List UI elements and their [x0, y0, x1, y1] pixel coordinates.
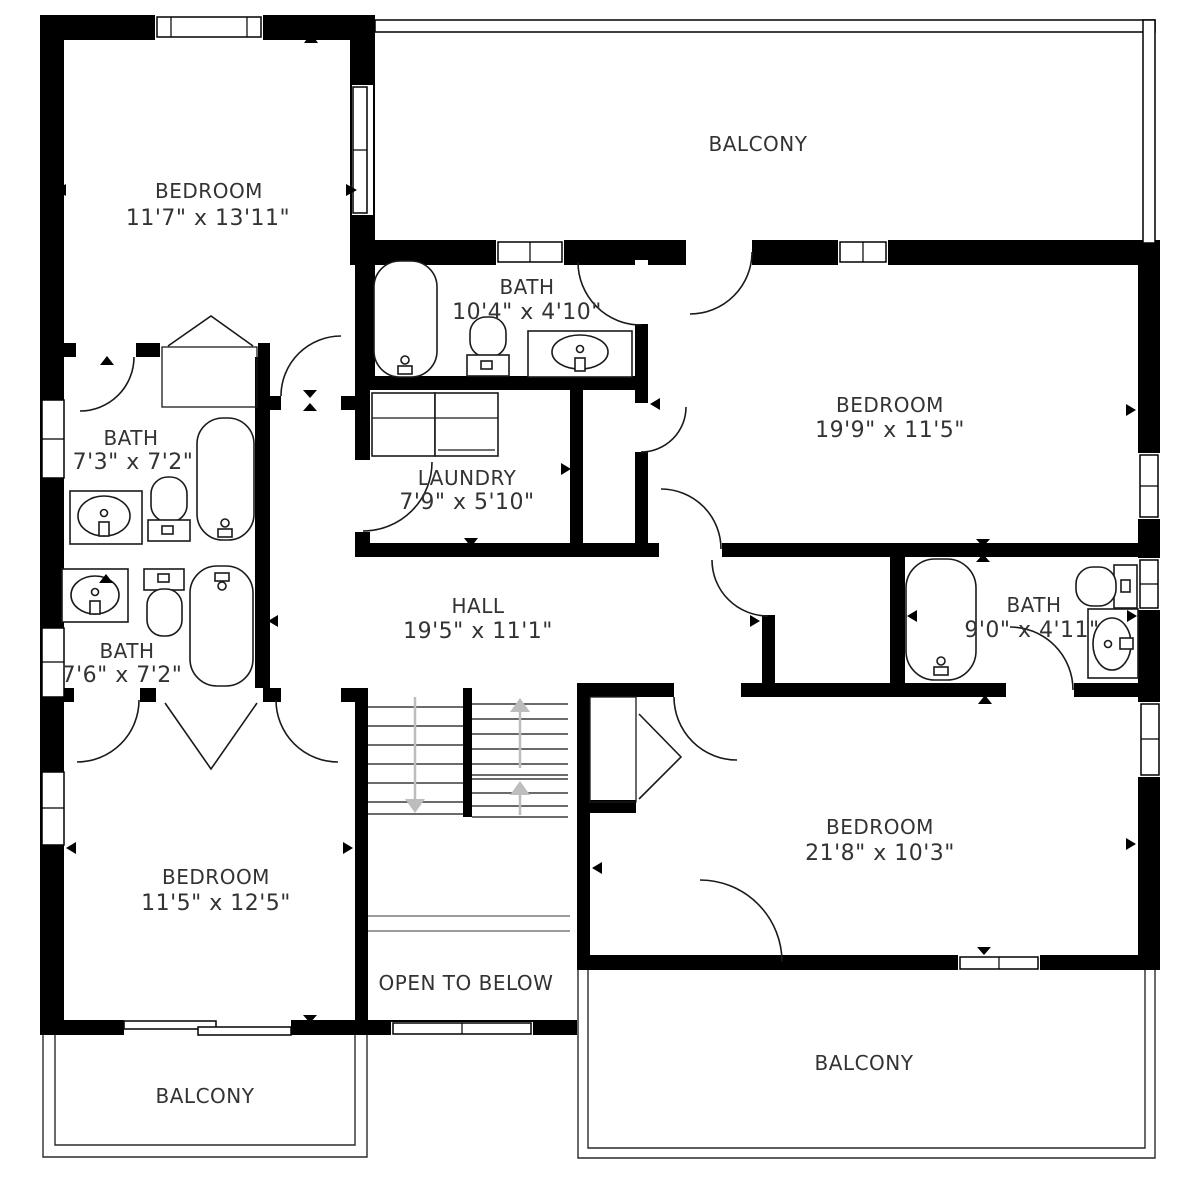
dims-hall: 19'5" x 11'1" — [403, 619, 553, 644]
toilet — [467, 317, 509, 376]
sink — [70, 491, 142, 544]
door-closet-bedroom-bottom-right — [674, 697, 737, 760]
dims-bath-upper-left: 7'3" x 7'2" — [73, 450, 194, 475]
balcony-top-rail — [375, 20, 1155, 32]
dims-bedroom-top-left: 11'7" x 13'11" — [126, 206, 290, 231]
label-bedroom-bottom-left: BEDROOM — [162, 865, 270, 889]
door-bath-lower-left — [77, 700, 139, 762]
dims-bath-top: 10'4" x 4'10" — [452, 300, 602, 325]
door-bath-upper-left — [80, 357, 134, 411]
label-bath-lower-left: BATH — [99, 639, 154, 663]
label-bedroom-bottom-right: BEDROOM — [826, 815, 934, 839]
bathtub — [197, 418, 254, 540]
dims-bath-lower-left: 7'6" x 7'2" — [62, 663, 183, 688]
dims-bedroom-right: 19'9" x 11'5" — [815, 418, 965, 443]
dims-bedroom-bottom-right: 21'8" x 10'3" — [805, 841, 955, 866]
dims-bath-right: 9'0" x 4'11" — [964, 618, 1099, 643]
floor-plan: BEDROOM 11'7" x 13'11" BALCONY BATH 10'4… — [0, 0, 1200, 1192]
closet-bottom-right — [590, 697, 681, 802]
toilet — [148, 477, 190, 541]
door-hall-bedroom-bottom-left — [276, 700, 338, 762]
door-walkin-closet — [712, 560, 768, 616]
door-hall-bedroom-right — [661, 489, 721, 549]
stairs-down-flight — [368, 697, 463, 814]
door-bedroom-bottom-right — [700, 880, 782, 962]
label-bath-top: BATH — [499, 275, 554, 299]
label-balcony-bottom-left: BALCONY — [156, 1084, 255, 1108]
floor-plan-svg: BEDROOM 11'7" x 13'11" BALCONY BATH 10'4… — [0, 0, 1200, 1192]
closet-top-left — [162, 316, 257, 407]
label-bedroom-right: BEDROOM — [836, 393, 944, 417]
stairs-up-flight — [472, 698, 568, 817]
closet-bottom-left — [165, 703, 257, 769]
label-balcony-bottom-right: BALCONY — [815, 1051, 914, 1075]
label-balcony-top: BALCONY — [709, 132, 808, 156]
toilet — [144, 569, 184, 636]
sink — [528, 331, 632, 377]
label-bath-upper-left: BATH — [103, 426, 158, 450]
washer-dryer — [372, 393, 498, 456]
bathtub — [190, 566, 253, 686]
open-to-below-ledge — [368, 916, 570, 931]
sink — [62, 569, 128, 622]
label-bath-right: BATH — [1006, 593, 1061, 617]
label-open-to-below: OPEN TO BELOW — [379, 971, 554, 995]
label-hall: HALL — [451, 594, 504, 618]
toilet — [1076, 565, 1137, 608]
dims-bedroom-bottom-left: 11'5" x 12'5" — [141, 891, 291, 916]
fixtures — [62, 261, 1138, 802]
label-laundry: LAUNDRY — [418, 466, 517, 490]
balcony-top-rail-right — [1143, 20, 1155, 243]
label-bedroom-top-left: BEDROOM — [155, 179, 263, 203]
bathtub — [374, 261, 437, 377]
door-bedroom-top-left — [281, 336, 341, 396]
dims-laundry: 7'9" x 5'10" — [399, 490, 534, 515]
